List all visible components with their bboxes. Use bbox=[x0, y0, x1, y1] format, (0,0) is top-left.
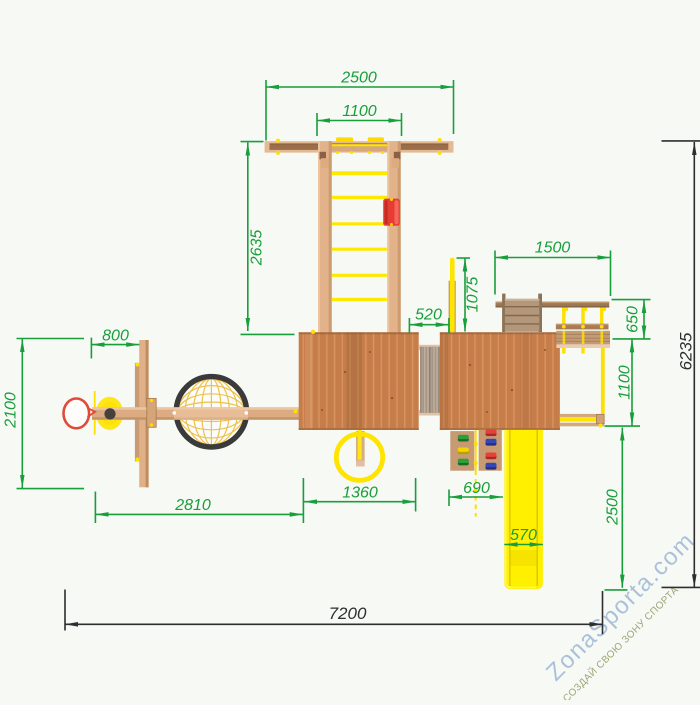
svg-text:690: 690 bbox=[463, 480, 490, 497]
svg-text:2810: 2810 bbox=[174, 497, 211, 514]
svg-text:2100: 2100 bbox=[3, 392, 20, 429]
svg-text:1100: 1100 bbox=[342, 103, 377, 120]
svg-text:1075: 1075 bbox=[465, 277, 482, 313]
svg-text:6235: 6235 bbox=[677, 332, 696, 370]
svg-text:2500: 2500 bbox=[605, 489, 622, 526]
svg-text:1500: 1500 bbox=[535, 240, 571, 257]
svg-text:570: 570 bbox=[510, 527, 537, 544]
svg-text:520: 520 bbox=[415, 307, 442, 324]
svg-text:7200: 7200 bbox=[329, 604, 367, 623]
svg-text:1100: 1100 bbox=[617, 365, 634, 400]
svg-text:650: 650 bbox=[625, 306, 642, 333]
svg-text:800: 800 bbox=[102, 328, 129, 345]
svg-text:2500: 2500 bbox=[340, 70, 377, 87]
svg-text:2635: 2635 bbox=[249, 230, 266, 267]
svg-text:1360: 1360 bbox=[342, 485, 378, 502]
